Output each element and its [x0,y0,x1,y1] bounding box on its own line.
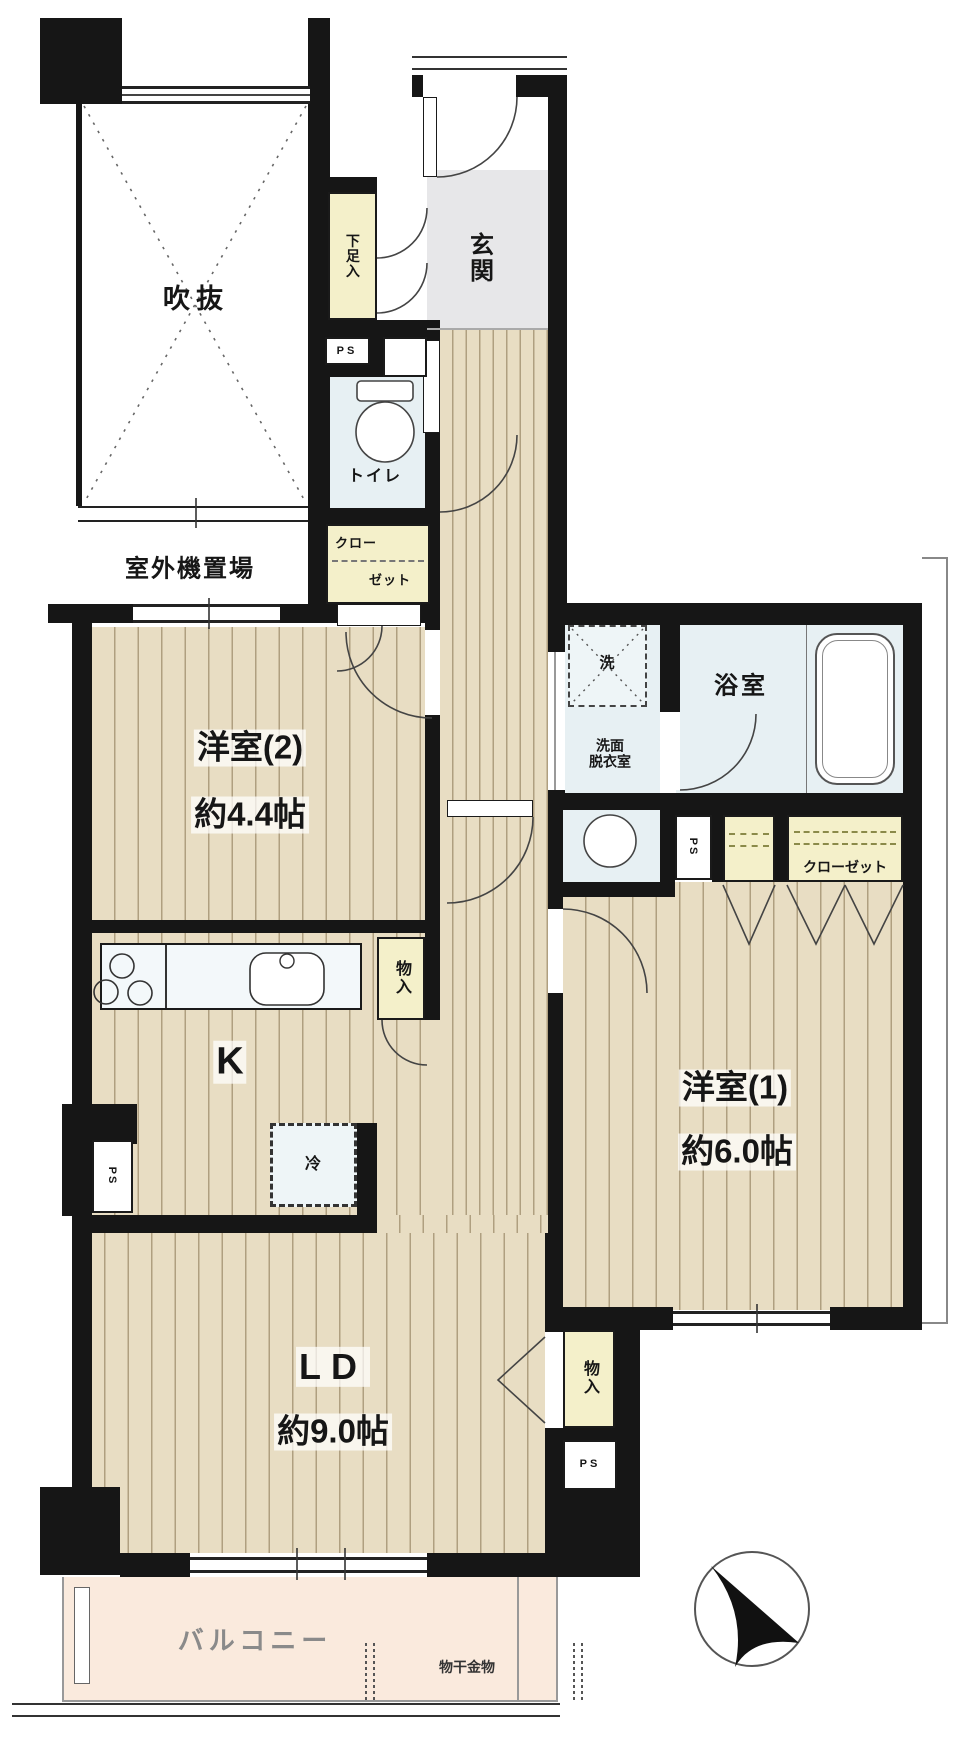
wall-closet-post-1 [712,815,723,882]
wall-ps-left-top [92,1104,137,1144]
wall-porch-top-left [412,75,423,97]
wall-right-main [903,603,922,1330]
basin-nook-floor [563,810,660,882]
label-room1-size: 約6.0帖 [678,1134,796,1171]
label-room1-closet: クローゼット [803,860,887,876]
toilet-floor [328,377,427,508]
label-ps-top: PS [337,345,358,357]
outer-line-right-bottom [922,1322,948,1324]
label-shoe-box: 下足入 [344,234,360,279]
rail-mid-line [122,94,310,96]
label-bathroom: 浴室 [714,674,768,701]
outer-line-right [946,558,948,1324]
wall-bath-wash-divider [660,625,680,712]
label-closet2-l2: ゼット [369,574,411,589]
label-washroom-l1: 洗面 [589,738,631,754]
label-room1-name: 洋室(1) [679,1070,791,1107]
label-ld-storage: 物入 [580,1360,598,1396]
label-washroom-l2: 脱衣室 [589,754,631,770]
wall-kitchen-ld-divider [82,1215,377,1233]
label-room2-size: 約4.4帖 [191,797,309,834]
room1-closet-small [723,815,775,882]
wall-void-left [76,104,82,506]
wall-room1-bottom-right [830,1307,922,1330]
floor-plan: 吹抜 室外機置場 玄関 下足入 PS トイレ クロー ゼット 洋室(2) 約4.… [0,0,960,1746]
wall-room1-bottom-left [563,1307,673,1330]
kitchen-counter [100,943,362,1010]
wall-shoebox-top [328,177,377,192]
dash [794,831,896,833]
balcony-partition-line [517,1577,519,1702]
wall-room2-top-left [48,604,133,623]
wall-left-main [72,604,92,1488]
label-ld-name: LD [296,1347,370,1387]
label-balcony: バルコニー [178,1626,332,1655]
room1-bottom-window [673,1311,830,1326]
label-toilet: トイレ [348,468,402,486]
washroom-sliding-line [554,652,556,790]
outer-line-right-top [922,557,948,559]
bath-door-opening [660,712,680,790]
washroom-sliding-opening [548,652,565,790]
label-room2-name: 洋室(2) [194,730,306,767]
wall-nook-bottom [548,882,675,897]
wall-below-ps [563,1490,640,1553]
ld-balcony-window [190,1557,427,1573]
void-top-rail [122,86,310,104]
label-washer: 洗 [599,656,614,673]
label-ld-size: 約9.0帖 [274,1414,392,1451]
wall-kstorage-right [425,913,440,1020]
pillar-left-mid [62,1104,92,1216]
entrance-step-line [427,328,548,330]
label-closet2-l1: クロー [335,537,377,552]
wall-ld-bottom-left [120,1553,190,1577]
ld-storage-opening [545,1332,563,1428]
label-ps-ld: PS [580,1458,601,1470]
wall-ld-bottom-right [427,1553,640,1577]
label-kitchen-storage: 物入 [392,960,410,996]
compass-icon [695,1552,809,1667]
counter-divider [165,945,167,1008]
balcony-outer-lines [12,1703,560,1717]
corridor-floor [440,330,548,817]
wall-storage-ps-divider [563,1428,617,1440]
ld-floor [82,1233,548,1553]
label-laundry-hardware: 物干金物 [439,1660,495,1676]
pillar-top-left [40,18,122,104]
wall-washroom-bottom [548,793,668,810]
dash [794,843,896,845]
bathtub-inner [822,640,888,778]
label-entrance: 玄関 [465,232,492,284]
dash [729,833,769,835]
bath-divider-line [806,625,807,793]
wall-entrance-right [548,75,567,607]
hall-strip-floor [440,817,548,1233]
pillar-bottom-left [40,1487,120,1575]
entrance-door-leaf [423,97,437,177]
toilet-shelf [383,337,427,377]
label-kitchen: K [213,1041,246,1084]
wall-strip-right [548,810,563,1233]
wall-toilet-closet-divider [328,508,440,524]
entrance-door-opening [423,75,516,97]
label-washroom: 洗面 脱衣室 [589,738,631,769]
wall-room2-kitchen-divider [82,920,425,933]
ld-door-leaf [447,800,533,817]
label-ps-left: PS [106,1167,118,1186]
label-ps-bath: PS [687,838,699,857]
bathtub [815,633,895,785]
room2-closet-door-leaf [337,604,421,626]
wall-closet-post-2 [775,815,787,882]
label-void: 吹抜 [163,284,229,314]
wall-center-column [308,18,330,608]
porch-outer-lines [412,56,567,70]
room2-door-opening [425,630,440,715]
room2-top-window [133,604,280,623]
wall-bath-top [548,603,922,625]
room1-door-opening [548,909,563,993]
room2-closet-dash [332,560,424,562]
wall-bath-bottom [660,793,922,815]
label-fridge: 冷 [305,1156,321,1174]
balcony-divider [74,1587,90,1684]
room2-floor [92,627,425,920]
label-outdoor-unit: 室外機置場 [125,557,255,584]
floor-bridge [377,1215,548,1233]
dash [729,845,769,847]
void-outdoor-divider [78,506,308,522]
